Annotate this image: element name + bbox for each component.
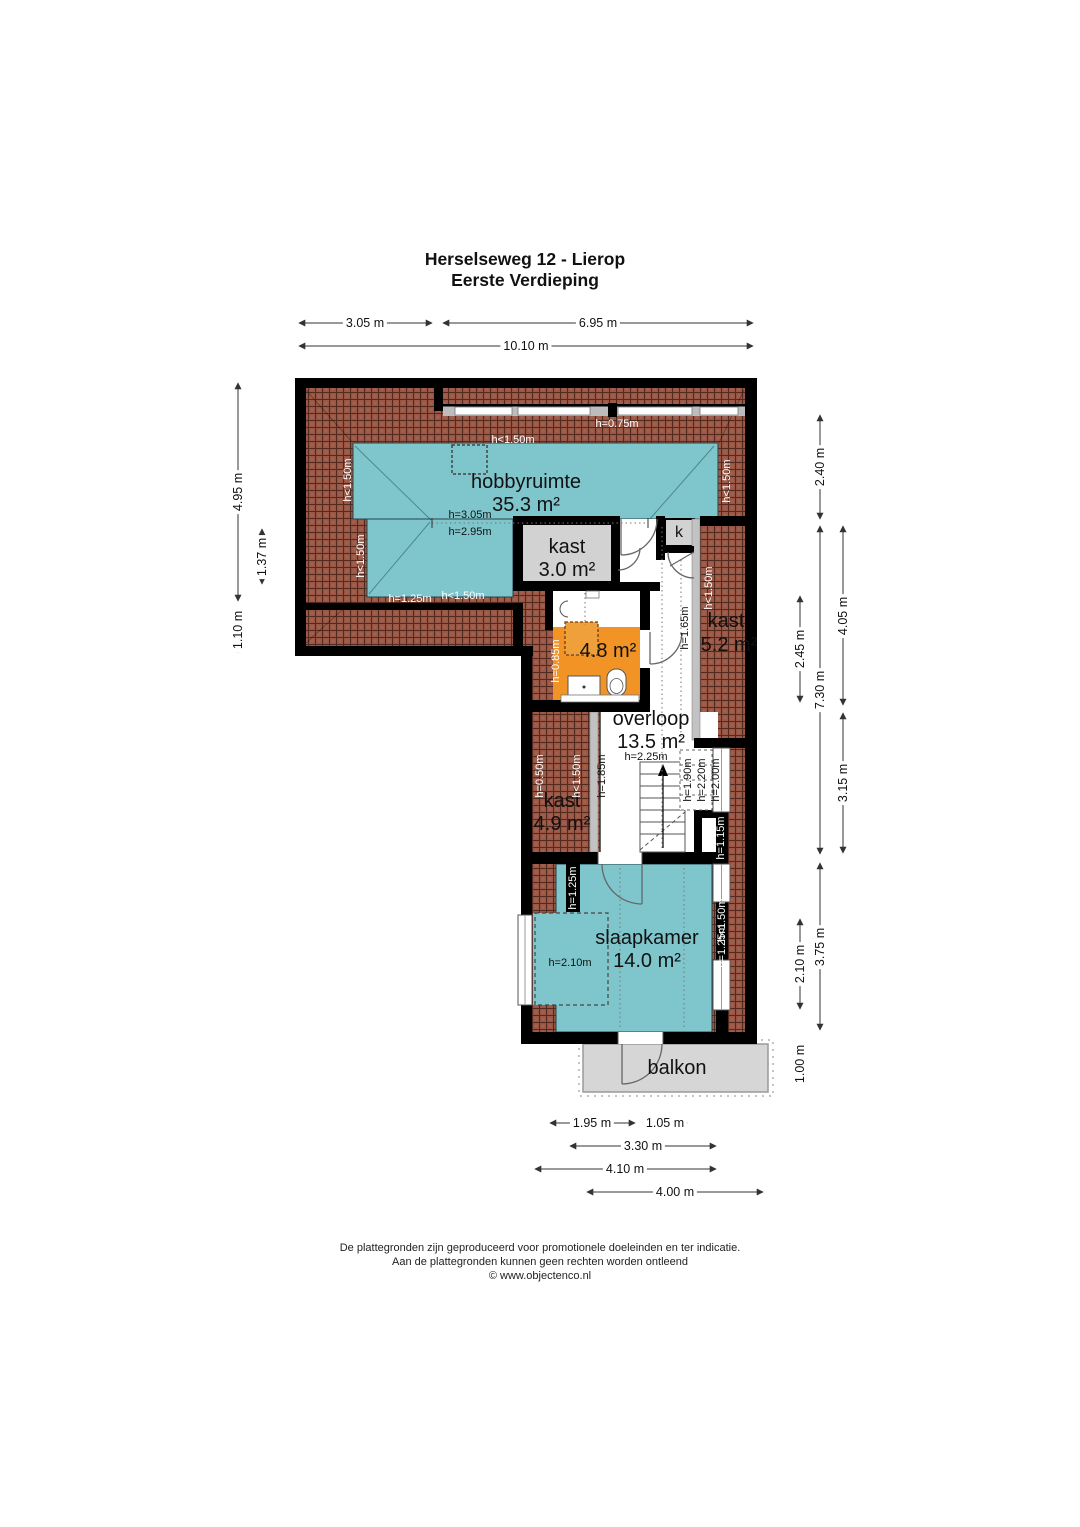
height-label: h=2.95m <box>448 526 491 538</box>
bedroom-door-opening <box>598 852 642 864</box>
height-label: h=1.65m <box>679 606 691 649</box>
height-label: h<1.50m <box>721 459 733 502</box>
height-label: h=2.10m <box>548 957 591 969</box>
height-label: h=1.25m <box>716 924 728 967</box>
room-label-slaapkamer: slaapkamer <box>595 927 698 949</box>
dim-left-3: 1.10 m <box>231 608 245 652</box>
dim-bottom-4: 4.10 m <box>603 1162 647 1176</box>
toilet <box>607 669 626 696</box>
height-label: h=1.15m <box>715 816 727 859</box>
dim-bottom-2: 1.05 m <box>643 1116 687 1130</box>
room-area-slaapkamer: 14.0 m² <box>613 950 681 972</box>
room-label-k: k <box>675 522 683 544</box>
height-label: h=1.25m <box>567 866 579 909</box>
height-label: h=3.05m <box>448 509 491 521</box>
room-area-kast-right: 5.2 m² <box>701 634 758 656</box>
height-label: h<1.50m <box>441 590 484 602</box>
bathroom-door-opening <box>640 630 650 668</box>
height-label: h<1.50m <box>491 434 534 446</box>
height-label: h=2.00m <box>710 758 722 801</box>
room-label-kast-right: kast <box>708 610 745 632</box>
height-label: h=0.75m <box>595 418 638 430</box>
disclaimer: De plattegronden zijn geproduceerd voor … <box>0 1241 1080 1283</box>
dim-right-1: 2.40 m <box>813 445 827 489</box>
dim-right-4: 7.30 m <box>813 668 827 712</box>
height-label: h=1.90m <box>682 758 694 801</box>
room-label-hobbyruimte: hobbyruimte <box>471 471 581 493</box>
height-label: h=1.85m <box>596 754 608 797</box>
dim-right-3: 2.45 m <box>793 627 807 671</box>
balcony-door-opening <box>618 1032 663 1044</box>
dim-top-2: 6.95 m <box>576 316 620 330</box>
dim-bottom-5: 4.00 m <box>653 1185 697 1199</box>
disclaimer-line-2: Aan de plattegronden kunnen geen rechten… <box>0 1255 1080 1269</box>
room-area-badkamer: 4.8 m² <box>580 640 637 662</box>
room-area-hobbyruimte: 35.3 m² <box>492 494 560 516</box>
bath-shelf <box>561 695 639 702</box>
height-label: h=1.25m <box>388 593 431 605</box>
room-area-overloop: 13.5 m² <box>617 731 685 753</box>
height-label: h=2.25m <box>624 751 667 763</box>
height-label: h<1.50m <box>703 566 715 609</box>
dim-right-6: 3.75 m <box>813 925 827 969</box>
dim-top-total: 10.10 m <box>500 339 551 353</box>
room-area-kast-top: 3.0 m² <box>539 559 596 581</box>
sink <box>586 591 599 598</box>
floorplan-page: Herselseweg 12 - Lierop Eerste Verdiepin… <box>0 0 1080 1527</box>
dim-top-1: 3.05 m <box>343 316 387 330</box>
room-label-overloop: overloop <box>613 708 690 730</box>
height-label: h=0.85m <box>550 639 562 682</box>
room-label-balkon: balkon <box>648 1057 707 1079</box>
dim-right-5: 3.15 m <box>836 761 850 805</box>
height-label: h=0.50m <box>534 754 546 797</box>
height-label: h<1.50m <box>571 754 583 797</box>
height-label: h<1.50m <box>342 458 354 501</box>
copyright: © www.objectenco.nl <box>0 1269 1080 1283</box>
room-area-kast-lower: 4.9 m² <box>534 813 591 835</box>
height-label: h=2.20m <box>696 758 708 801</box>
dim-right-7: 2.10 m <box>793 942 807 986</box>
dim-bottom-1: 1.95 m <box>570 1116 614 1130</box>
height-label: h<1.50m <box>355 534 367 577</box>
disclaimer-line-1: De plattegronden zijn geproduceerd voor … <box>0 1241 1080 1255</box>
chimney-outline <box>452 445 487 474</box>
room-label-kast-top: kast <box>549 536 586 558</box>
dim-left-2: 1.37 m <box>255 535 269 579</box>
dim-right-2: 4.05 m <box>836 594 850 638</box>
dim-left-1: 4.95 m <box>231 470 245 514</box>
dim-bottom-3: 3.30 m <box>621 1139 665 1153</box>
dim-right-8: 1.00 m <box>793 1042 807 1086</box>
